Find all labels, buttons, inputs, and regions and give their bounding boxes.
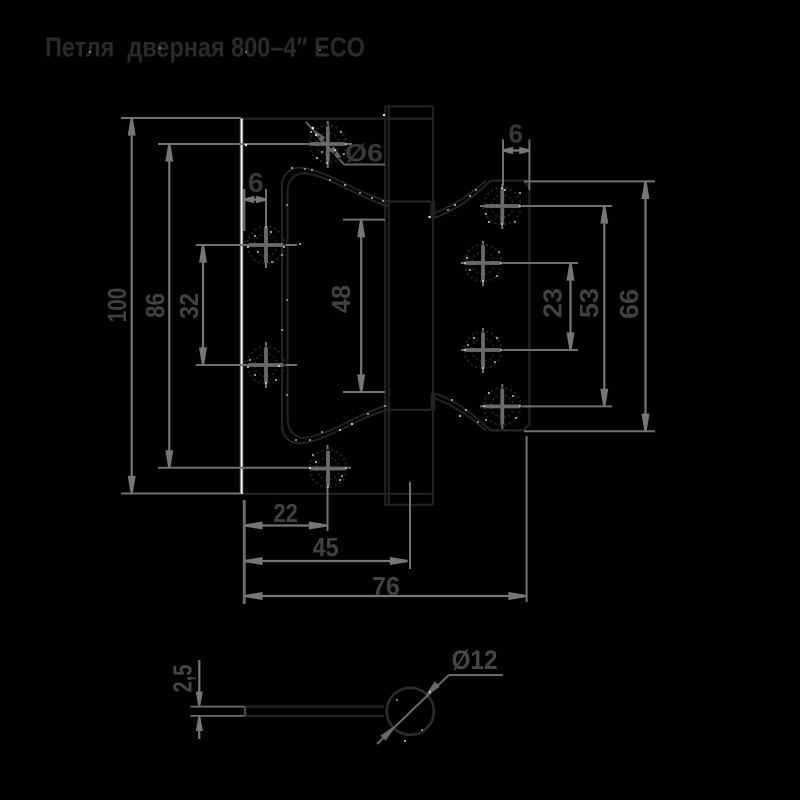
svg-text:6: 6	[248, 167, 264, 198]
svg-text:76: 76	[372, 571, 400, 601]
svg-text:45: 45	[313, 532, 339, 562]
svg-text:6: 6	[508, 119, 522, 149]
svg-text:48: 48	[326, 285, 356, 313]
svg-text:86: 86	[140, 293, 170, 318]
svg-text:Ø6: Ø6	[345, 140, 383, 168]
svg-text:Ø12: Ø12	[452, 645, 498, 675]
svg-text:22: 22	[273, 498, 298, 528]
svg-text:32: 32	[174, 293, 204, 319]
svg-text:2,5: 2,5	[168, 665, 198, 693]
svg-text:23: 23	[538, 288, 568, 318]
svg-text:Петля дверная 800–4″ ECO: Петля дверная 800–4″ ECO	[45, 32, 365, 63]
svg-text:53: 53	[574, 288, 604, 318]
svg-text:100: 100	[102, 288, 132, 323]
svg-text:66: 66	[614, 289, 644, 319]
